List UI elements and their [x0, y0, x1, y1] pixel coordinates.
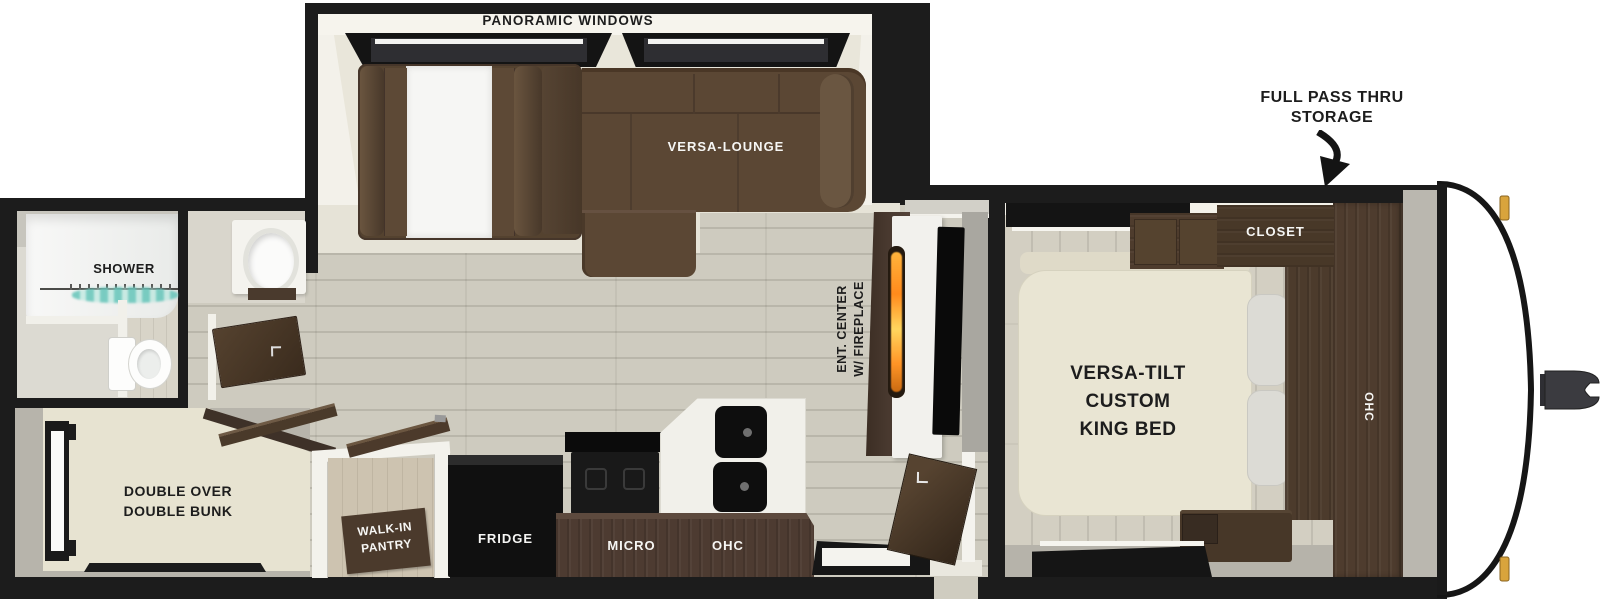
door-handle-icon — [271, 346, 281, 356]
bedside-wardrobe — [1285, 267, 1333, 520]
ent-wall-shadow — [962, 212, 988, 452]
panoramic-windows-label: PANORAMIC WINDOWS — [318, 13, 818, 28]
stove — [571, 452, 659, 514]
tv — [932, 227, 964, 436]
panoramic-window-left — [345, 33, 612, 67]
king-bed-label: VERSA-TILT CUSTOM KING BED — [1028, 360, 1228, 444]
pantry-wall-left — [312, 452, 328, 578]
bedroom-divider-wall — [988, 185, 1005, 577]
closet: CLOSET — [1217, 205, 1334, 267]
bunk-front-trim — [84, 563, 266, 572]
cabinet-door — [1179, 219, 1222, 265]
bunk-label: DOUBLE OVER DOUBLE BUNK — [68, 481, 288, 521]
sectional-seam-1 — [693, 74, 695, 114]
fridge-top-edge — [448, 455, 563, 465]
closet-label: CLOSET — [1217, 224, 1334, 239]
front-cap-trim — [1437, 184, 1447, 595]
wall-bottom — [0, 577, 1447, 599]
sofa-divider-arm — [542, 67, 582, 234]
bunk-window-tab-bottom — [69, 540, 76, 556]
pillow — [1247, 390, 1289, 486]
marker-light-icon — [1500, 557, 1509, 581]
sectional-seam-2 — [778, 74, 780, 114]
entry-threshold — [930, 560, 982, 576]
marker-light-icon — [1500, 196, 1509, 220]
fridge: FRIDGE — [448, 455, 563, 577]
sofa-bed-mattress — [406, 66, 492, 238]
pantry-label: WALK-IN PANTRY — [342, 517, 429, 560]
sink-drain-icon — [743, 428, 752, 437]
storage-arrow-icon — [1290, 130, 1370, 190]
floorplan-canvas: PANORAMIC WINDOWS VERSA-LOUNGE SHOWER — [0, 0, 1600, 599]
front-cap-body — [1440, 184, 1531, 595]
king-bed-label-line1: VERSA-TILT — [1028, 360, 1228, 388]
bunk-window — [45, 421, 69, 561]
king-bed-label-line3: KING BED — [1028, 416, 1228, 444]
vanity-base-shadow — [248, 288, 296, 300]
micro-label: MICRO — [594, 538, 669, 553]
sectional-seat-seam-2 — [737, 114, 739, 212]
sectional-back-seam — [582, 112, 844, 114]
shower-label: SHOWER — [44, 261, 204, 276]
panoramic-window-right — [622, 33, 850, 67]
ent-center-label: ENT. CENTER W/ FIREPLACE — [834, 254, 870, 404]
vanity-sink — [243, 228, 299, 294]
hitch-coupler-icon — [1545, 371, 1599, 409]
pantry-label-board: WALK-IN PANTRY — [341, 508, 431, 574]
king-bed-label-line2: CUSTOM — [1028, 388, 1228, 416]
storage-label-line1: FULL PASS THRU — [1232, 88, 1432, 108]
ent-center-label-line1: ENT. CENTER — [834, 254, 851, 404]
bath-shelf — [26, 316, 120, 324]
pillow — [1247, 294, 1289, 386]
ent-center-label-line2: W/ FIREPLACE — [851, 254, 868, 404]
fridge-label: FRIDGE — [448, 531, 563, 546]
fireplace-flame-icon — [891, 252, 902, 392]
sectional-seat-seam-1 — [630, 114, 632, 212]
stove-backsplash — [565, 432, 661, 452]
sofa-bed-cushion-right — [492, 68, 515, 236]
bedroom-ohc-label: OHC — [1360, 379, 1376, 435]
overbed-cabinet — [1130, 213, 1224, 269]
toilet-bowl-inner — [137, 349, 161, 379]
versa-lounge-label: VERSA-LOUNGE — [626, 139, 826, 154]
window-slit — [375, 39, 583, 44]
storage-label-line2: STORAGE — [1232, 108, 1432, 128]
sink-drain-icon — [740, 482, 749, 491]
bunk-window-pane — [51, 431, 64, 551]
cabinet-door — [1134, 219, 1177, 265]
sofa-bed-arm-left — [360, 66, 384, 236]
pass-thru-storage-label: FULL PASS THRU STORAGE — [1232, 88, 1432, 128]
slide-out-wall-stub — [305, 200, 318, 273]
versa-lounge-chaise — [582, 210, 696, 277]
bunk-window-tab-top — [69, 424, 76, 440]
burner-icon — [585, 468, 607, 490]
entry-doorway-gap — [934, 577, 978, 599]
toilet-bowl — [128, 339, 172, 389]
window-slit — [648, 39, 824, 44]
bathroom-door-jamb — [208, 314, 216, 400]
kitchen-sink-basin-1 — [715, 406, 767, 458]
kitchen-ohc-bar: MICRO OHC — [556, 513, 814, 577]
door-handle-icon — [917, 472, 928, 483]
kitchen-sink-basin-2 — [713, 462, 767, 512]
bunk-label-line1: DOUBLE OVER — [68, 481, 288, 501]
bedroom-bottom-window-sill — [1040, 541, 1204, 546]
sofa-bed-cushion-left — [384, 68, 407, 236]
sofa-bed-arm-right — [514, 66, 542, 236]
front-cap — [1430, 168, 1600, 599]
bench-drawer — [1182, 514, 1218, 544]
burner-icon — [623, 468, 645, 490]
pantry-door-latch-icon — [435, 415, 446, 423]
kitchen-ohc-label: OHC — [693, 538, 763, 553]
bunk-label-line2: DOUBLE BUNK — [68, 501, 288, 521]
